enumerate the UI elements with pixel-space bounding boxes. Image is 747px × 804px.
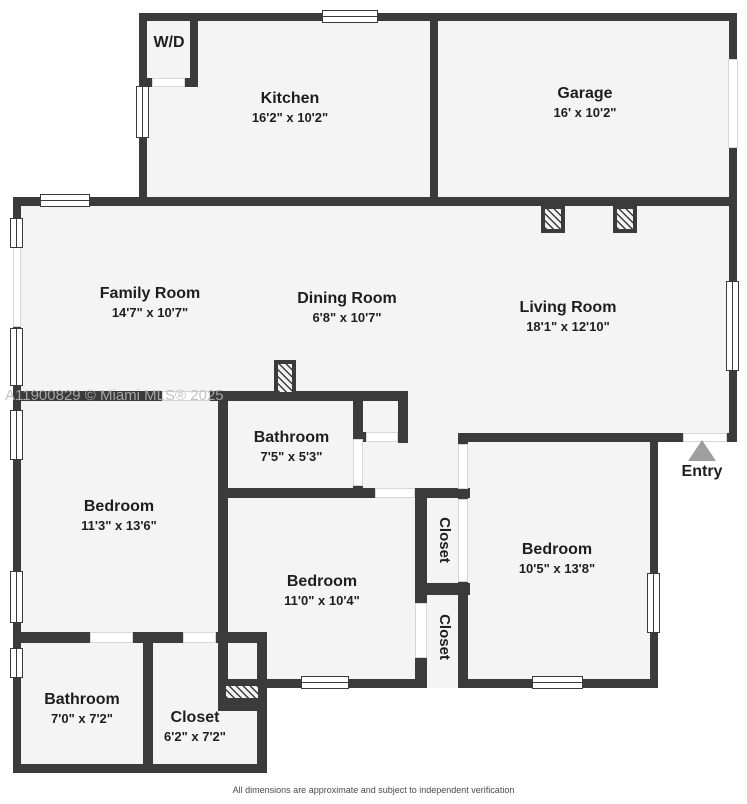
room-label-closet-annex: Closet 6'2" x 7'2": [115, 708, 275, 745]
room-name: Bathroom: [2, 690, 162, 710]
wall: [140, 13, 737, 21]
door-opening: [375, 488, 415, 498]
room-name: Bedroom: [232, 572, 412, 592]
window: [301, 676, 349, 689]
room-dims: 10'5" x 13'8": [467, 561, 647, 577]
wall: [218, 391, 228, 711]
disclaimer-text: All dimensions are approximate and subje…: [0, 785, 747, 795]
door-hatch: [613, 205, 637, 233]
room-dims: 14'7" x 10'7": [50, 305, 250, 321]
door-opening: [90, 632, 133, 643]
room-label-wd: W/D: [139, 33, 199, 53]
room-name: W/D: [139, 33, 199, 53]
room-label-bedroom-middle: Bedroom 11'0" x 10'4": [232, 572, 412, 609]
door-opening: [183, 632, 216, 643]
door-hatch: [222, 682, 262, 702]
room-dims: 7'5" x 5'3": [228, 449, 355, 465]
room-name: Bathroom: [228, 428, 355, 448]
room-label-dining-room: Dining Room 6'8" x 10'7": [247, 289, 447, 326]
wall: [430, 13, 438, 205]
room-name: Closet: [115, 708, 275, 728]
window: [10, 648, 23, 678]
window: [647, 573, 660, 633]
window: [10, 328, 23, 386]
room-label-bathroom: Bathroom 7'5" x 5'3": [228, 428, 355, 465]
door-opening: [458, 444, 468, 489]
room-dims: 11'0" x 10'4": [232, 593, 412, 609]
room-label-living-room: Living Room 18'1" x 12'10": [468, 298, 668, 335]
room-name: Dining Room: [247, 289, 447, 309]
floor-plan: Entry W/D Kitchen 16'2" x 10'2" Garage 1…: [0, 0, 747, 804]
room-dims: 11'3" x 13'6": [29, 518, 209, 534]
room-label-closet-upper: Closet: [433, 495, 453, 585]
window: [322, 10, 378, 23]
wall: [13, 764, 267, 773]
door-hatch: [541, 205, 565, 233]
door-hatch: [274, 360, 296, 396]
room-dims: 6'8" x 10'7": [247, 310, 447, 326]
room-label-family-room: Family Room 14'7" x 10'7": [50, 284, 250, 321]
room-label-closet-lower: Closet: [433, 592, 453, 682]
room-name: Kitchen: [190, 89, 390, 109]
door-opening: [152, 78, 185, 87]
window: [136, 86, 149, 138]
door-opening: [415, 603, 427, 658]
room-label-bedroom-left: Bedroom 11'3" x 13'6": [29, 497, 209, 534]
room-label-bedroom-right: Bedroom 10'5" x 13'8": [467, 540, 647, 577]
window: [10, 571, 23, 623]
room-name: Bedroom: [467, 540, 647, 560]
room-dims: 16' x 10'2": [485, 105, 685, 121]
room-dims: 16'2" x 10'2": [190, 110, 390, 126]
window-gap: [13, 247, 21, 327]
window: [40, 194, 90, 207]
mls-watermark: A11900829 © Miami MLS® 2025: [5, 387, 224, 404]
room-name: Garage: [485, 84, 685, 104]
room-dims: 18'1" x 12'10": [468, 319, 668, 335]
room-name: Bedroom: [29, 497, 209, 517]
garage-opening: [728, 59, 738, 148]
window: [532, 676, 583, 689]
room-label-garage: Garage 16' x 10'2": [485, 84, 685, 121]
entry-label: Entry: [652, 463, 747, 481]
window: [10, 410, 23, 460]
room-name: Family Room: [50, 284, 250, 304]
entry-arrow-icon: [688, 440, 716, 461]
room-name: Living Room: [468, 298, 668, 318]
window: [726, 281, 739, 371]
wall: [13, 632, 267, 643]
door-opening: [366, 432, 398, 442]
window: [10, 218, 23, 248]
room-dims: 6'2" x 7'2": [115, 729, 275, 745]
room-label-kitchen: Kitchen 16'2" x 10'2": [190, 89, 390, 126]
